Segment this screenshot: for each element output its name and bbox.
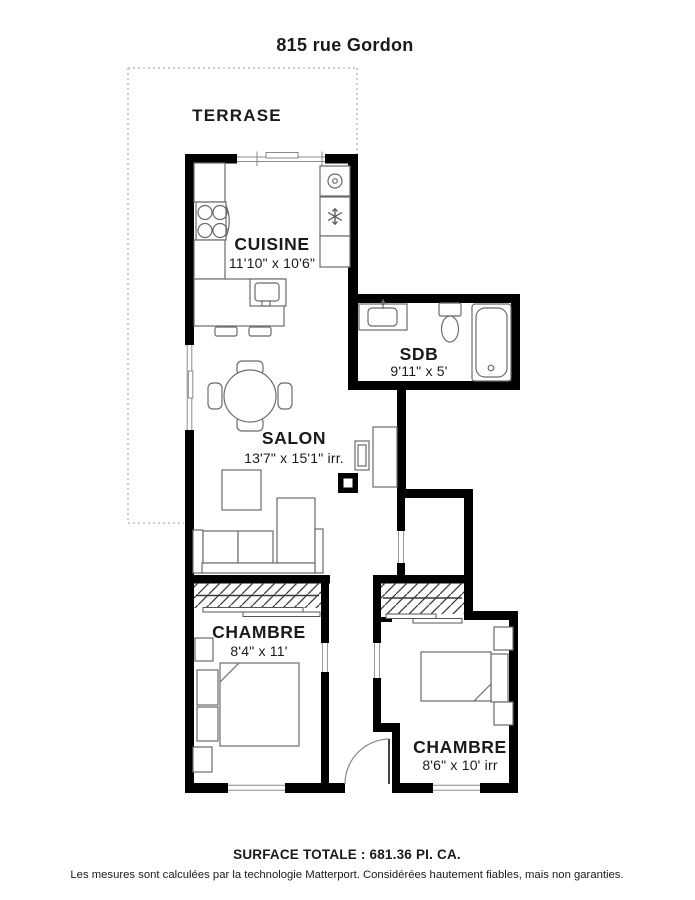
stove-icon (196, 202, 229, 240)
freezer-snowflake-icon (320, 197, 350, 236)
door-bedroom1 (323, 643, 328, 672)
room-dims-chambre1: 8'4" x 11' (230, 643, 287, 659)
kitchen-counter-upper (194, 163, 225, 202)
page-title: 815 rue Gordon (276, 35, 413, 55)
dining-table-set (208, 361, 292, 431)
room-label-chambre2: CHAMBRE (413, 737, 507, 757)
nightstand (197, 707, 218, 741)
terrace-label: TERRASE (192, 106, 282, 125)
room-dims-sdb: 9'11" x 5' (390, 363, 447, 379)
room-dims-cuisine: 11'10" x 10'6" (229, 255, 315, 271)
room-label-salon: SALON (262, 428, 326, 448)
room-label-cuisine: CUISINE (234, 234, 309, 254)
room-label-sdb: SDB (400, 344, 439, 364)
rug (222, 470, 261, 510)
room-dims-chambre2: 8'6" x 10' irr (422, 757, 498, 773)
nightstand (494, 627, 513, 650)
kitchen-counter-right (320, 236, 350, 267)
entry-door (345, 739, 389, 784)
nightstand (494, 702, 513, 725)
sliding-door-kitchen-top (237, 152, 325, 167)
island-sink (250, 279, 286, 306)
bar-stool (249, 327, 271, 336)
tv-console (355, 427, 397, 487)
bed-bedroom2 (421, 652, 508, 702)
dresser (193, 747, 212, 772)
kitchen-counter-lower (194, 240, 225, 279)
dresser (195, 638, 213, 661)
bed-bedroom1 (220, 663, 299, 746)
closet-bedroom1 (194, 583, 321, 617)
nightstand (197, 670, 218, 705)
closet-bedroom2 (381, 583, 464, 623)
window-salon-left (185, 345, 194, 430)
window-bedroom1-bottom (228, 783, 285, 793)
bathroom-vanity (359, 299, 407, 330)
window-bedroom2-bottom (433, 783, 480, 793)
door-storage (399, 531, 404, 563)
floorplan-page: 815 rue Gordon TERRASE CUISINE 11'10" x … (0, 0, 695, 900)
door-bedroom2 (375, 643, 380, 678)
bar-stool (215, 327, 237, 336)
floorplan-canvas: 815 rue Gordon TERRASE CUISINE 11'10" x … (0, 0, 695, 900)
washing-machine-icon (320, 166, 350, 196)
surface-total: SURFACE TOTALE : 681.36 PI. CA. (233, 847, 461, 862)
room-label-chambre1: CHAMBRE (212, 622, 306, 642)
room-dims-salon: 13'7" x 15'1" irr. (244, 450, 344, 466)
column (338, 473, 358, 493)
disclaimer: Les mesures sont calculées par la techno… (70, 869, 623, 881)
bathtub-icon (472, 304, 511, 381)
toilet-icon (439, 303, 461, 342)
